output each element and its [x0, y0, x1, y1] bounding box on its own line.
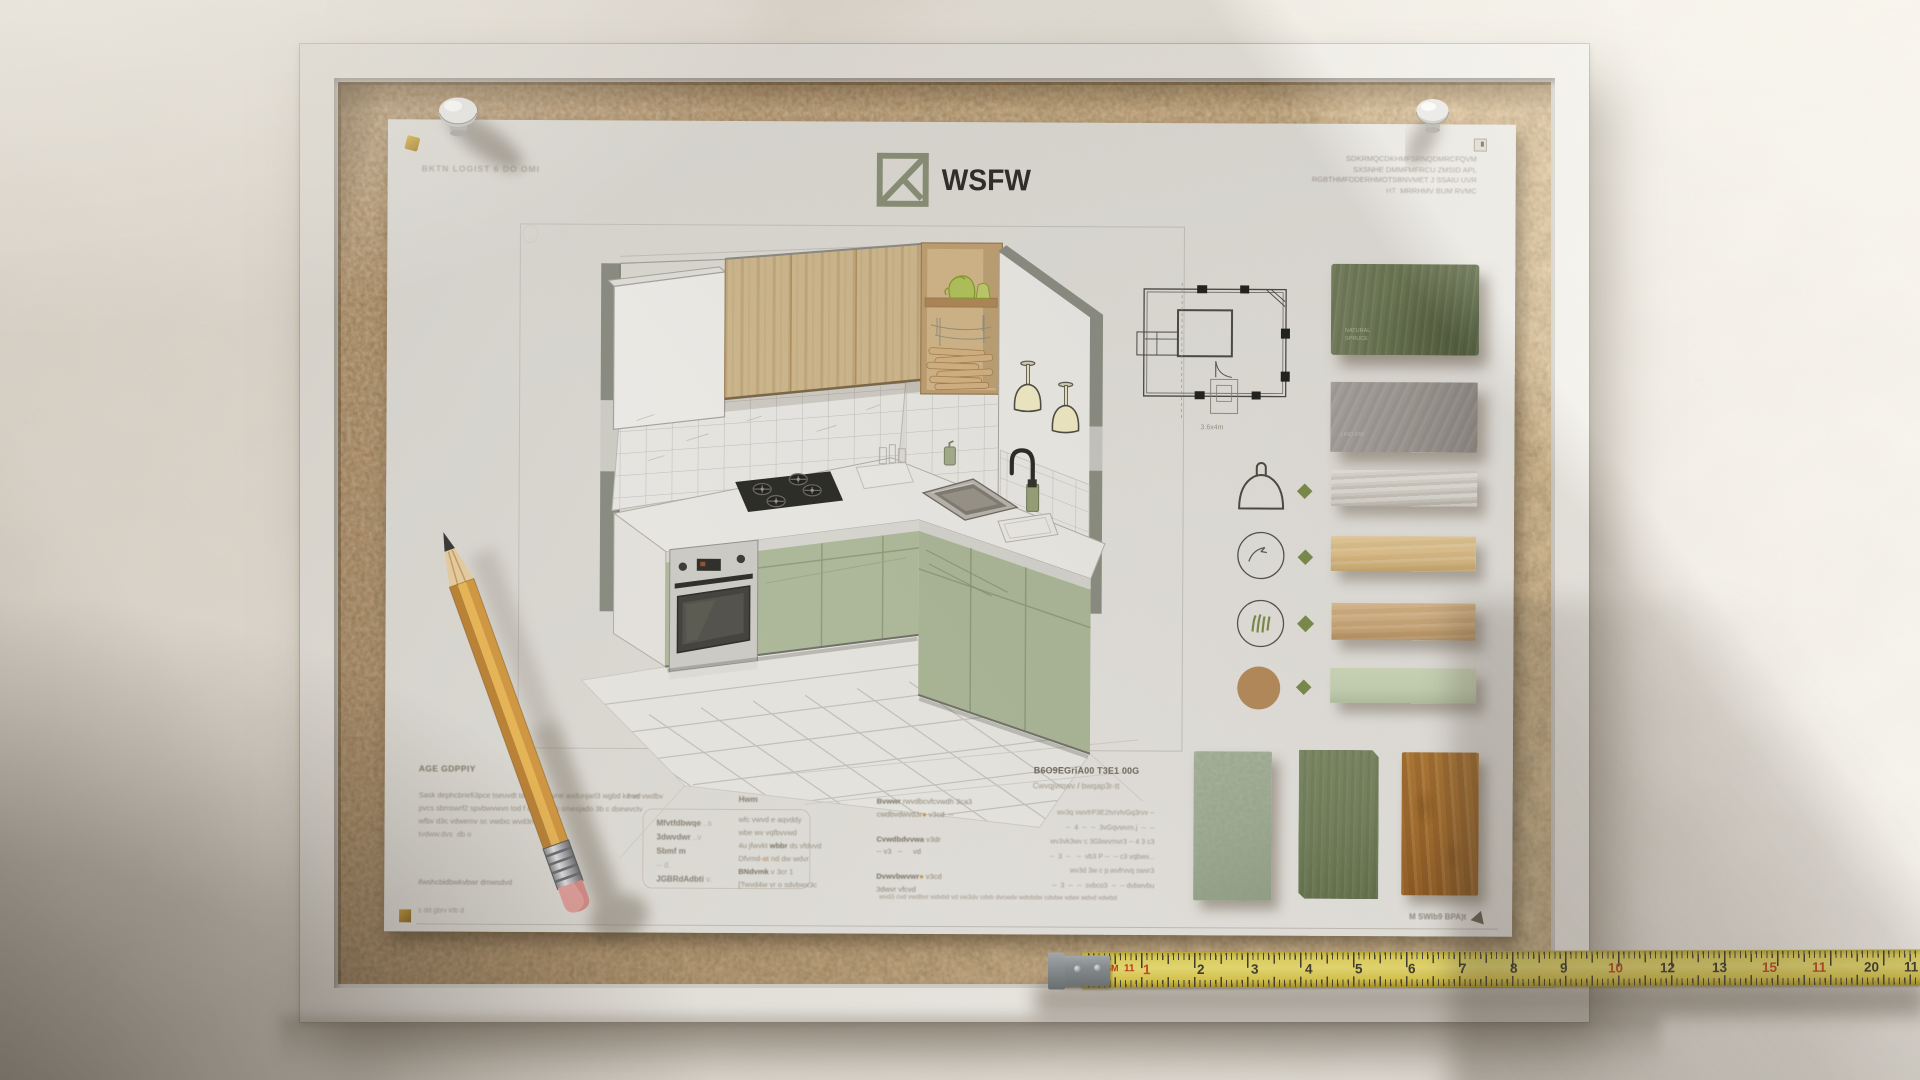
svg-text:3.6x4m: 3.6x4m: [1200, 424, 1223, 431]
